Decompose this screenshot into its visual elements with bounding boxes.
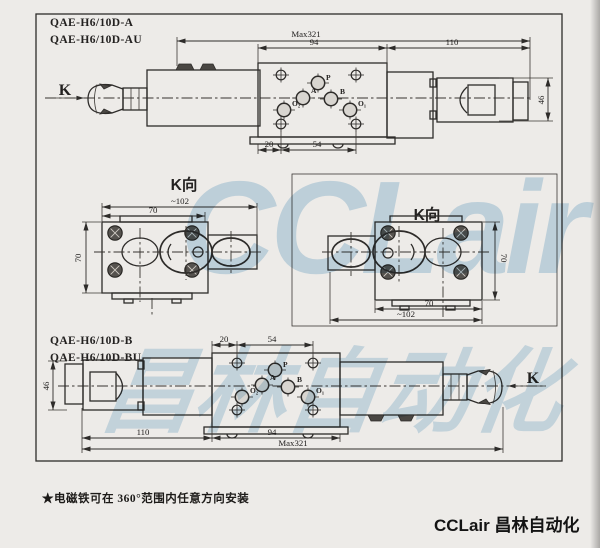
scanned-datasheet-page: QAE-H6/10D-A QAE-H6/10D-AU K — [0, 0, 600, 548]
view-arrow-label-b: K — [527, 370, 540, 387]
view-k-right-title: K向 — [414, 205, 441, 224]
port-label-o1: O₁ — [358, 99, 366, 108]
drawing-a-connector — [387, 72, 528, 138]
view-k-left: K向 ~102 70 — [73, 175, 262, 317]
dim-span-b: 54 — [268, 334, 277, 344]
dim-span-a: 54 — [313, 139, 322, 149]
bolt — [185, 263, 199, 277]
port-label-a: A — [311, 86, 317, 95]
port-b — [320, 90, 342, 109]
dim-body-a: 94 — [310, 37, 319, 47]
bolt — [108, 226, 122, 240]
dim-body-b: 94 — [268, 427, 277, 437]
model-label-b1: QAE-H6/10D-B — [50, 335, 133, 347]
bolt — [454, 265, 468, 279]
dim-overall-k1: ~102 — [171, 196, 189, 206]
port-label-o2: O₂ — [250, 386, 259, 395]
port-label-a: A — [270, 373, 276, 382]
drawing-a-valve-body: P A B O₂ O₁ — [250, 63, 395, 148]
valve-dimension-drawing: QAE-H6/10D-A QAE-H6/10D-AU K — [0, 0, 600, 548]
view-k-left-dimensions: ~102 70 70 — [73, 196, 257, 293]
dim-offset-a: 20 — [265, 139, 274, 149]
dim-height-k2: 70 — [499, 254, 509, 263]
drawing-a: QAE-H6/10D-A QAE-H6/10D-AU K — [45, 17, 553, 154]
bolt — [108, 263, 122, 277]
port-label-b: B — [340, 87, 345, 96]
drawing-a-dimensions: Max321 94 110 20 54 46 — [177, 29, 553, 154]
drawing-b-solenoid — [340, 362, 502, 421]
port-label-p: P — [283, 360, 288, 369]
mount-hole — [348, 68, 364, 83]
model-label-a2: QAE-H6/10D-AU — [50, 34, 142, 46]
drawing-b-valve-body: P A B O₂ O₁ — [204, 353, 348, 438]
dim-height-b: 46 — [41, 381, 51, 390]
dim-overall-b: Max321 — [278, 438, 307, 448]
scan-edge-shadow — [590, 0, 600, 548]
port-label-o1: O₁ — [316, 386, 324, 395]
mount-hole — [229, 403, 245, 418]
dim-overall-k2: ~102 — [397, 309, 415, 319]
dim-offset-b: 20 — [220, 334, 229, 344]
mount-hole — [273, 117, 289, 132]
dim-connector-b: 110 — [137, 427, 150, 437]
mount-hole — [305, 403, 321, 418]
drawing-a-solenoid — [88, 64, 260, 126]
mount-hole — [229, 356, 245, 371]
drawing-b: QAE-H6/10D-B QAE-H6/10D-BU K — [41, 334, 546, 453]
dim-connector-a: 110 — [446, 37, 459, 47]
port-b — [277, 378, 299, 397]
dim-height-k1: 70 — [73, 253, 83, 262]
model-label-b2: QAE-H6/10D-BU — [50, 352, 142, 364]
view-arrow-label-a: K — [59, 82, 72, 99]
port-label-b: B — [297, 375, 302, 384]
dim-width-k1: 70 — [149, 205, 158, 215]
port-label-o2: O₂ — [292, 99, 301, 108]
installation-note: ★电磁铁可在 360°范围内任意方向安装 — [42, 490, 249, 506]
model-label-a1: QAE-H6/10D-A — [50, 17, 134, 29]
drawing-b-connector — [65, 358, 212, 415]
dim-height-a: 46 — [536, 95, 546, 104]
port-label-p: P — [326, 73, 331, 82]
dim-width-k2: 70 — [425, 298, 434, 308]
view-k-right: K向 70 70 — [292, 174, 557, 326]
brand-footer: CCLair 昌林自动化 — [434, 511, 579, 536]
mount-hole — [305, 356, 321, 371]
mount-hole — [273, 68, 289, 83]
view-k-left-title: K向 — [171, 175, 198, 194]
bolt — [454, 226, 468, 240]
